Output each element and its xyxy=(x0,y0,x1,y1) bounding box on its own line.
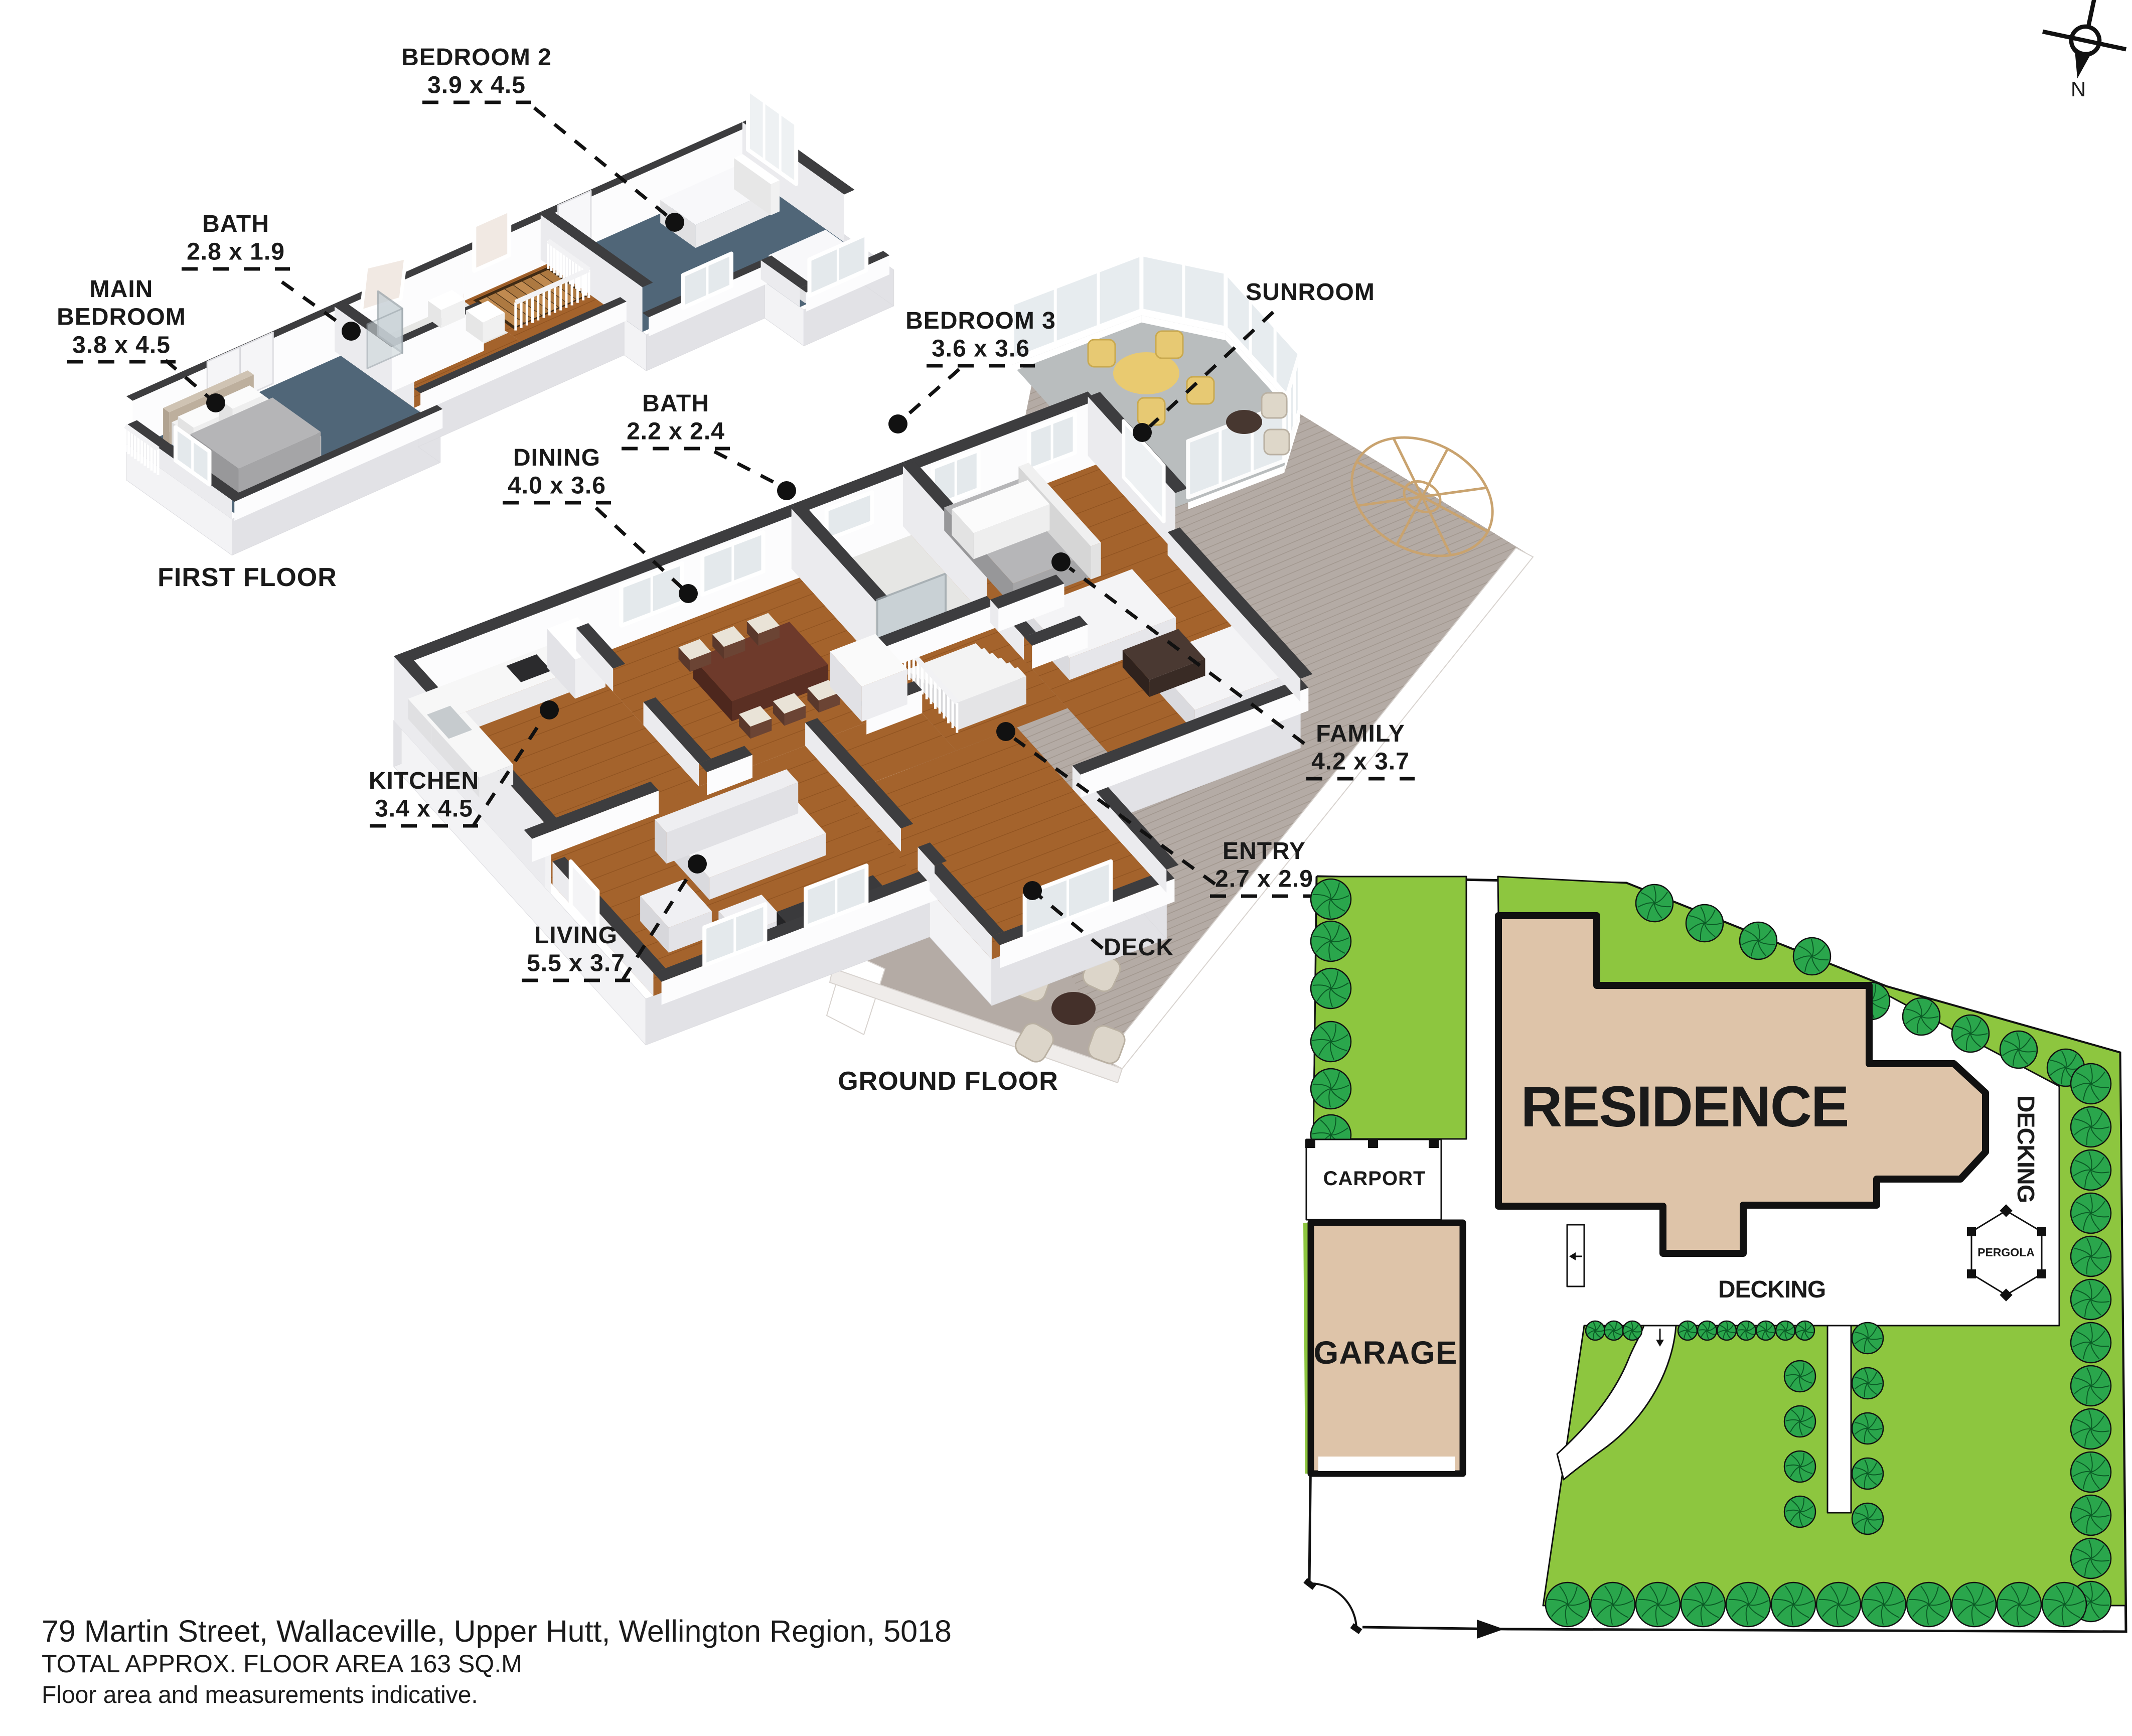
svg-text:2.8 x 1.9: 2.8 x 1.9 xyxy=(187,239,285,265)
svg-text:N: N xyxy=(2071,77,2086,101)
svg-text:MAIN: MAIN xyxy=(90,276,154,303)
svg-text:Floor area and measurements in: Floor area and measurements indicative. xyxy=(42,1682,478,1708)
svg-text:GROUND FLOOR: GROUND FLOOR xyxy=(838,1067,1058,1096)
svg-text:FIRST FLOOR: FIRST FLOOR xyxy=(158,563,337,592)
svg-text:SUNROOM: SUNROOM xyxy=(1246,279,1375,306)
svg-text:DECK: DECK xyxy=(1104,934,1174,961)
svg-text:LIVING: LIVING xyxy=(534,922,618,949)
svg-text:GARAGE: GARAGE xyxy=(1314,1335,1458,1371)
svg-text:2.2 x 2.4: 2.2 x 2.4 xyxy=(627,418,725,445)
svg-text:3.4 x 4.5: 3.4 x 4.5 xyxy=(375,796,473,822)
svg-text:3.9 x 4.5: 3.9 x 4.5 xyxy=(427,72,526,99)
svg-text:PERGOLA: PERGOLA xyxy=(1977,1246,2035,1259)
svg-text:CARPORT: CARPORT xyxy=(1323,1168,1426,1190)
svg-text:BEDROOM 2: BEDROOM 2 xyxy=(401,44,552,71)
svg-text:3.8 x 4.5: 3.8 x 4.5 xyxy=(72,332,171,358)
svg-text:DECKING: DECKING xyxy=(2012,1095,2039,1203)
svg-text:5.5 x 3.7: 5.5 x 3.7 xyxy=(527,950,625,977)
svg-text:RESIDENCE: RESIDENCE xyxy=(1521,1075,1849,1139)
svg-text:BATH: BATH xyxy=(202,211,269,237)
svg-text:2.7 x 2.9: 2.7 x 2.9 xyxy=(1215,866,1313,893)
svg-text:3.6 x 3.6: 3.6 x 3.6 xyxy=(932,336,1030,362)
svg-text:4.0 x 3.6: 4.0 x 3.6 xyxy=(508,473,606,499)
svg-text:DINING: DINING xyxy=(513,445,600,471)
svg-text:BATH: BATH xyxy=(642,390,709,417)
svg-text:BEDROOM 3: BEDROOM 3 xyxy=(905,308,1056,334)
svg-text:79 Martin Street, Wallaceville: 79 Martin Street, Wallaceville, Upper Hu… xyxy=(42,1614,952,1648)
svg-text:KITCHEN: KITCHEN xyxy=(369,768,479,794)
svg-text:BEDROOM: BEDROOM xyxy=(57,304,186,331)
svg-text:FAMILY: FAMILY xyxy=(1316,720,1405,747)
svg-text:TOTAL APPROX. FLOOR AREA 163 S: TOTAL APPROX. FLOOR AREA 163 SQ.M xyxy=(42,1650,522,1678)
svg-text:ENTRY: ENTRY xyxy=(1223,838,1306,864)
svg-text:4.2 x 3.7: 4.2 x 3.7 xyxy=(1311,749,1410,775)
svg-text:DECKING: DECKING xyxy=(1718,1276,1825,1303)
